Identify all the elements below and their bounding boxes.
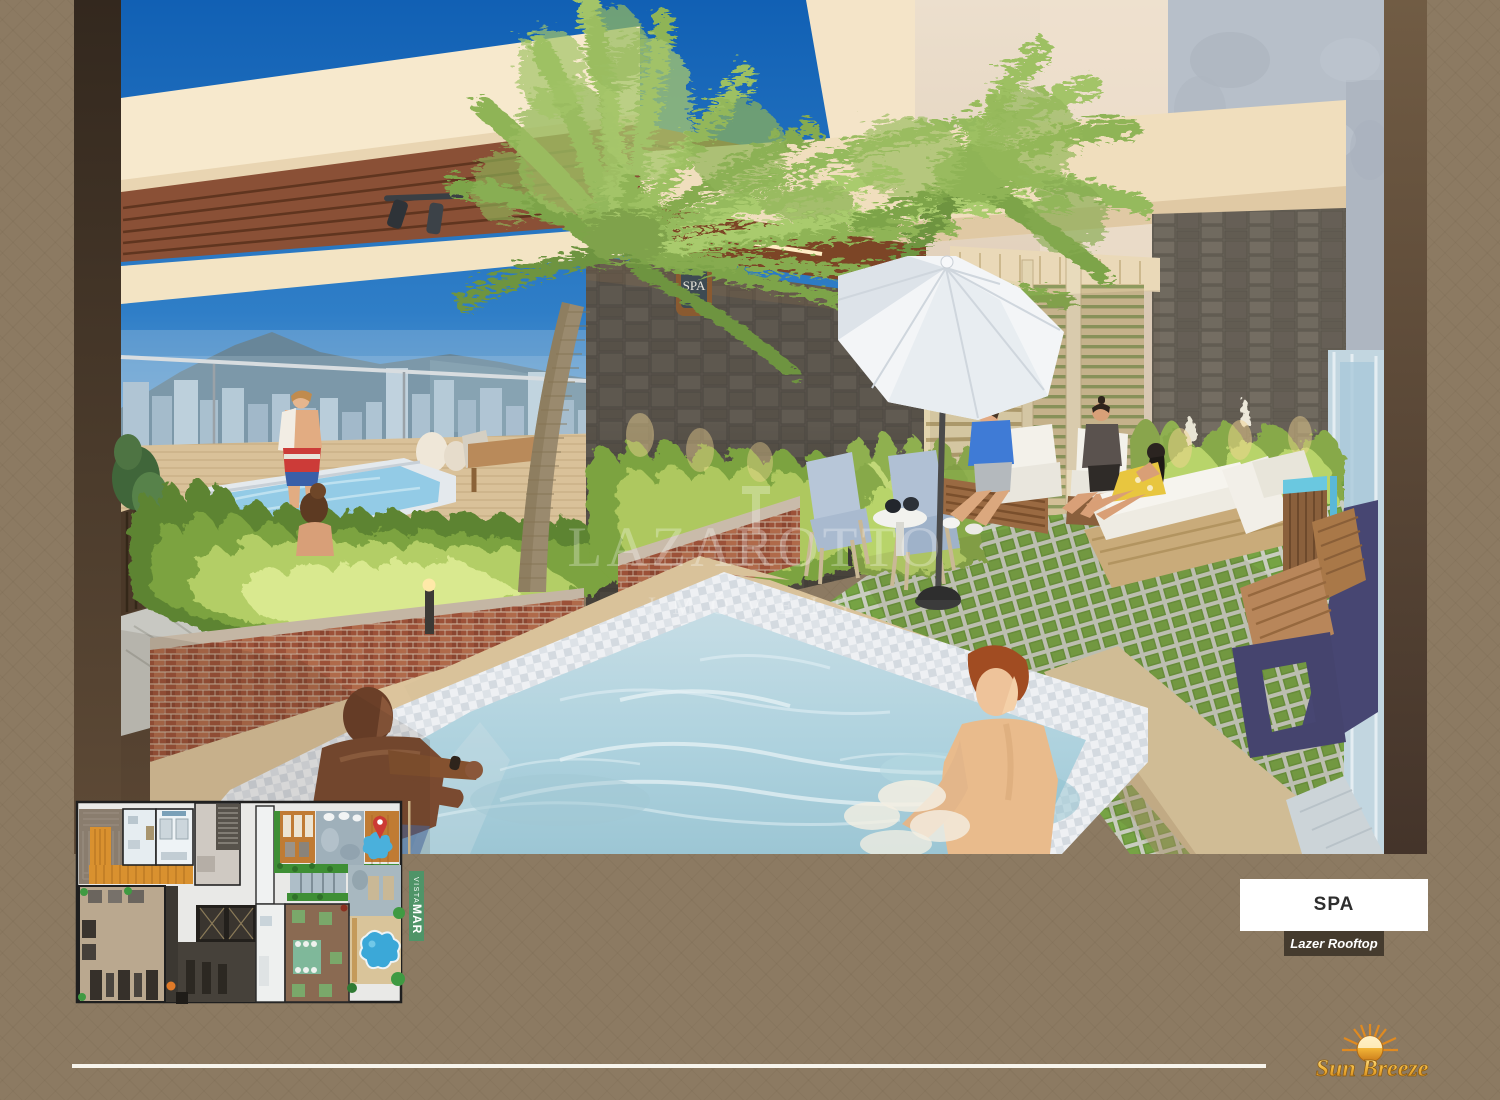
- svg-text:VISTA: VISTA: [412, 877, 419, 904]
- svg-text:Sun Breeze: Sun Breeze: [1316, 1056, 1429, 1082]
- svg-text:MAR: MAR: [410, 904, 424, 934]
- svg-text:IMÓVEIS: IMÓVEIS: [648, 592, 864, 620]
- svg-text:LAZAROTTO: LAZAROTTO: [568, 516, 945, 579]
